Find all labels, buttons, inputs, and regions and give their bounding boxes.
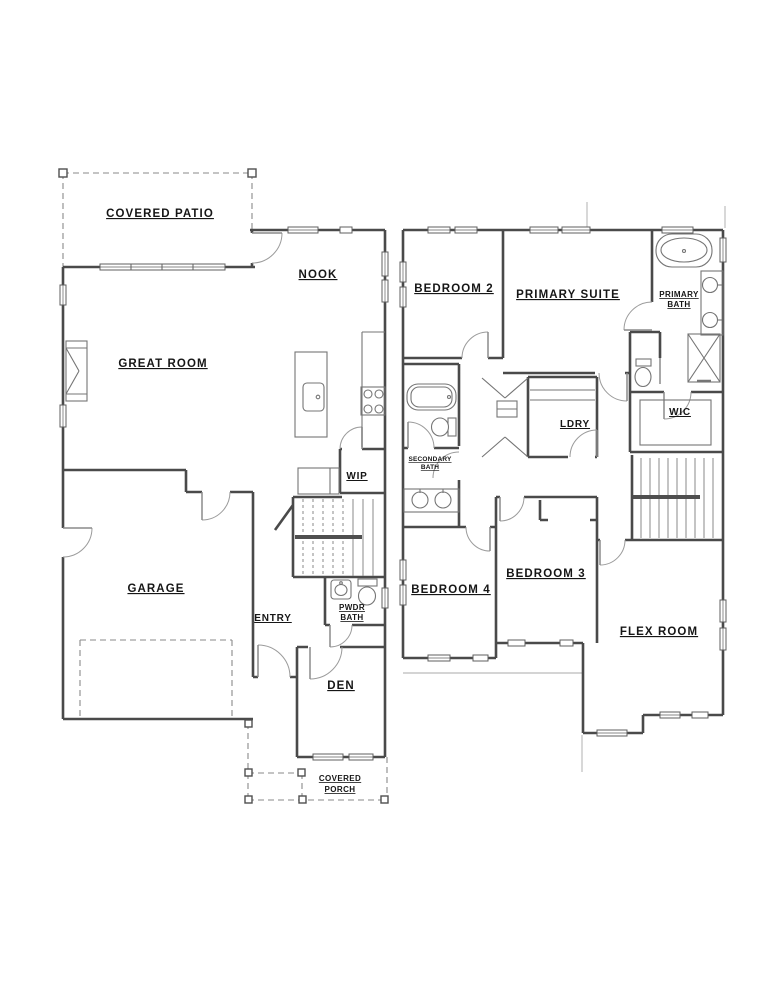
label-primary-bath-1: PRIMARY [659, 290, 699, 299]
label-secondary-bath-2: BATH [421, 464, 439, 471]
laundry-counter [530, 390, 595, 400]
kitchen-island [295, 352, 327, 437]
powder-sink-icon [331, 580, 351, 599]
coat-closet [298, 468, 339, 494]
floor-plan-drawing: COVERED PATIO NOOK GREAT ROOM WIP GARAGE… [0, 0, 773, 1000]
second-floor-plan: BEDROOM 2 PRIMARY SUITE PRIMARY BATH SEC… [400, 202, 726, 772]
label-secondary-bath-1: SECONDARY [408, 456, 452, 463]
secondary-vanity-sinks [404, 489, 459, 512]
label-covered-porch-2: PORCH [325, 785, 356, 794]
label-covered-patio: COVERED PATIO [106, 208, 214, 220]
label-wip: WIP [346, 471, 367, 482]
floor-plan-page: COVERED PATIO NOOK GREAT ROOM WIP GARAGE… [0, 0, 773, 1000]
staircase-first-floor [295, 499, 373, 576]
label-bedroom-4: BEDROOM 4 [411, 584, 491, 596]
hall-closets [482, 378, 528, 457]
label-wic: WIC [669, 407, 691, 418]
powder-toilet-icon [358, 579, 377, 605]
label-flex-room: FLEX ROOM [620, 626, 698, 638]
patio-post [248, 169, 256, 177]
patio-post [59, 169, 67, 177]
kitchen-range [361, 332, 385, 447]
covered-porch-outline [245, 720, 388, 803]
label-great-room: GREAT ROOM [118, 358, 207, 370]
label-nook: NOOK [299, 269, 338, 281]
label-covered-porch-1: COVERED [319, 774, 361, 783]
garage-door-outline [80, 640, 232, 717]
label-primary-suite: PRIMARY SUITE [516, 289, 620, 301]
label-bedroom-2: BEDROOM 2 [414, 283, 494, 295]
label-entry: ENTRY [254, 613, 292, 624]
label-garage: GARAGE [127, 583, 184, 595]
staircase-second-floor [633, 458, 713, 538]
secondary-toilet-icon [432, 418, 457, 436]
label-primary-bath-2: BATH [667, 300, 690, 309]
first-floor-doors [63, 233, 362, 679]
label-pwdr-bath-2: BATH [340, 613, 363, 622]
secondary-tub-icon [407, 384, 456, 410]
label-bedroom-3: BEDROOM 3 [506, 568, 586, 580]
label-ldry: LDRY [560, 419, 590, 430]
label-pwdr-bath-1: PWDR [339, 603, 365, 612]
first-floor-plan: COVERED PATIO NOOK GREAT ROOM WIP GARAGE… [59, 169, 388, 803]
shower-icon [688, 334, 720, 382]
primary-tub-icon [656, 234, 712, 267]
primary-vanity-sinks [701, 271, 723, 335]
label-den: DEN [327, 680, 355, 692]
kitchen-sink-icon [303, 383, 324, 411]
primary-toilet-icon [635, 359, 651, 387]
fireplace-icon [66, 341, 87, 401]
